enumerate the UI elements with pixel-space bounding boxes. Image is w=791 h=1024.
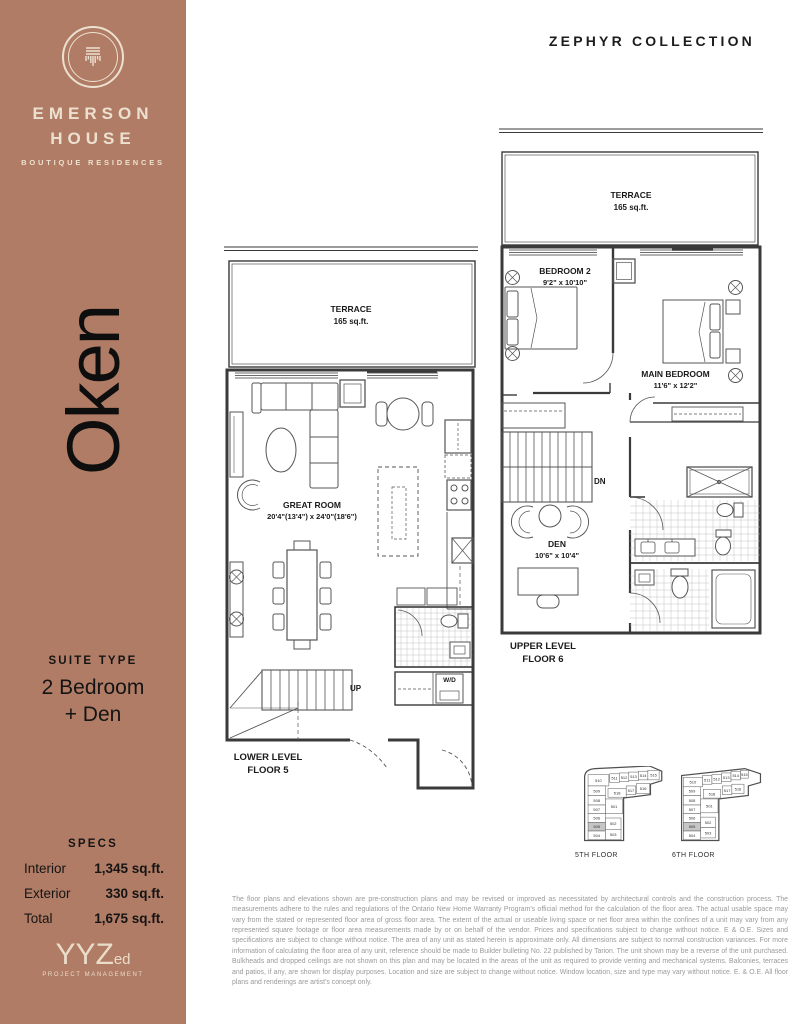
keyplan-6th-drawing: 5105115125135145155095185175165085015075…	[672, 766, 777, 844]
specs-heading: SPECS	[0, 838, 186, 850]
main-bedroom-label: MAIN BEDROOM 11'6" x 12'2"	[613, 369, 738, 391]
svg-text:502: 502	[705, 820, 712, 825]
svg-text:511: 511	[704, 777, 711, 782]
svg-text:517: 517	[724, 788, 731, 793]
svg-text:516: 516	[640, 786, 647, 791]
washer-dryer-label: W/D	[436, 676, 463, 685]
keyplan-6th-floor: 5105115125135145155095185175165085015075…	[672, 766, 784, 859]
stairs-up-label: UP	[350, 683, 380, 694]
floorplan-lower-level: TERRACE 165 sq.ft. GREAT ROOM 20'4"(13'4…	[222, 244, 480, 792]
svg-text:515: 515	[650, 773, 657, 778]
svg-text:507: 507	[593, 807, 600, 812]
spec-value: 330 sq.ft.	[105, 886, 164, 901]
brand-line2: HOUSE	[0, 127, 186, 152]
suite-name: Oken	[51, 306, 136, 475]
svg-text:501: 501	[611, 804, 618, 809]
svg-text:517: 517	[628, 788, 635, 793]
svg-text:518: 518	[614, 790, 621, 795]
den-label: DEN 10'6" x 10'4"	[512, 539, 602, 561]
crest-inner-ring	[68, 32, 118, 82]
svg-text:516: 516	[735, 787, 742, 792]
floorplan-upper-level: TERRACE 165 sq.ft. BEDROOM 2 9'2" x 10'1…	[497, 126, 765, 671]
svg-text:505: 505	[689, 824, 696, 829]
suite-name-block: Oken	[0, 285, 186, 495]
developer-subtitle: PROJECT MANAGEMENT	[0, 972, 186, 978]
svg-text:512: 512	[621, 775, 628, 780]
developer-logo: YYZed PROJECT MANAGEMENT	[0, 940, 186, 978]
brand-block: EMERSON HOUSE BOUTIQUE RESIDENCES	[0, 26, 186, 167]
suite-type: 2 Bedroom + Den	[0, 674, 186, 729]
collection-title: ZEPHYR COLLECTION	[549, 33, 755, 49]
brand-name: EMERSON HOUSE	[0, 102, 186, 151]
svg-text:513: 513	[630, 774, 637, 779]
svg-text:515: 515	[741, 772, 748, 777]
specs-table: Interior 1,345 sq.ft. Exterior 330 sq.ft…	[24, 861, 164, 936]
keyplan-5th-drawing: 5105115125135145155095185175165085015075…	[575, 766, 680, 844]
brand-line1: EMERSON	[0, 102, 186, 127]
terrace-label-upper: TERRACE 165 sq.ft.	[497, 190, 765, 213]
svg-text:503: 503	[705, 830, 712, 835]
upper-level-caption: UPPER LEVEL FLOOR 6	[497, 641, 589, 667]
spec-value: 1,345 sq.ft.	[94, 861, 164, 876]
keyplan-5th-floor: 5105115125135145155095185175165085015075…	[575, 766, 680, 859]
terrace-label-lower: TERRACE 165 sq.ft.	[222, 304, 480, 327]
svg-text:510: 510	[595, 778, 602, 783]
suite-type-heading: SUITE TYPE	[0, 655, 186, 667]
svg-text:514: 514	[732, 773, 739, 778]
stairs-dn-label: DN	[594, 476, 624, 487]
svg-text:518: 518	[709, 791, 716, 796]
svg-text:510: 510	[690, 780, 697, 785]
spec-label: Exterior	[24, 886, 71, 901]
svg-text:506: 506	[593, 816, 600, 821]
svg-text:511: 511	[611, 776, 618, 781]
svg-text:503: 503	[610, 832, 617, 837]
brochure-page: EMERSON HOUSE BOUTIQUE RESIDENCES Oken S…	[0, 0, 791, 1024]
spec-value: 1,675 sq.ft.	[94, 911, 164, 926]
svg-text:509: 509	[689, 789, 696, 794]
developer-wordmark: YYZed	[0, 940, 186, 970]
disclaimer-text: The floor plans and elevations shown are…	[232, 895, 788, 988]
spec-row-exterior: Exterior 330 sq.ft.	[24, 886, 164, 901]
svg-text:513: 513	[723, 775, 730, 780]
svg-text:504: 504	[593, 833, 600, 838]
svg-text:507: 507	[689, 807, 696, 812]
svg-text:506: 506	[689, 816, 696, 821]
suite-type-line1: 2 Bedroom	[0, 674, 186, 701]
suite-type-line2: + Den	[0, 701, 186, 728]
spec-label: Interior	[24, 861, 66, 876]
emerson-house-crest-icon	[62, 26, 124, 88]
bedroom2-label: BEDROOM 2 9'2" x 10'10"	[513, 266, 617, 288]
svg-text:504: 504	[689, 833, 696, 838]
spec-row-interior: Interior 1,345 sq.ft.	[24, 861, 164, 876]
svg-text:505: 505	[593, 824, 600, 829]
spec-row-total: Total 1,675 sq.ft.	[24, 911, 164, 926]
spec-label: Total	[24, 911, 53, 926]
lower-level-caption: LOWER LEVEL FLOOR 5	[222, 752, 314, 778]
svg-text:514: 514	[640, 773, 647, 778]
svg-text:502: 502	[610, 821, 617, 826]
svg-text:501: 501	[706, 803, 713, 808]
svg-text:508: 508	[593, 798, 600, 803]
brand-tagline: BOUTIQUE RESIDENCES	[0, 158, 186, 167]
svg-text:509: 509	[593, 788, 600, 793]
sidebar: EMERSON HOUSE BOUTIQUE RESIDENCES Oken S…	[0, 0, 186, 1024]
keyplan-5th-caption: 5TH FLOOR	[575, 852, 680, 859]
great-room-label: GREAT ROOM 20'4"(13'4") x 24'0"(18'6")	[232, 500, 392, 522]
svg-text:508: 508	[689, 798, 696, 803]
keyplan-6th-caption: 6TH FLOOR	[672, 852, 784, 859]
svg-text:512: 512	[713, 777, 720, 782]
